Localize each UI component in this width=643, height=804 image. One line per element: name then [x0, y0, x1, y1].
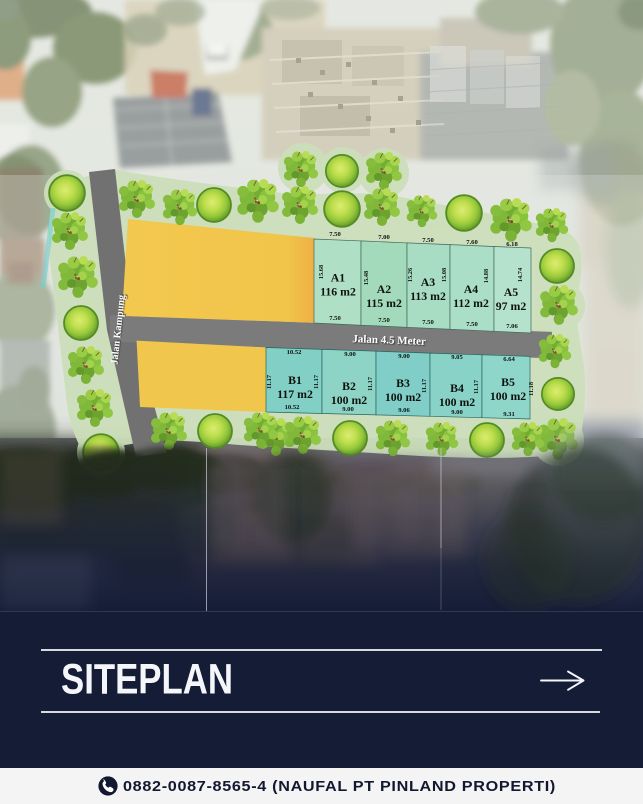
- svg-text:15.08: 15.08: [441, 268, 448, 282]
- svg-text:B5: B5: [501, 375, 515, 389]
- svg-text:113 m2: 113 m2: [410, 289, 446, 303]
- svg-text:11.17: 11.17: [266, 374, 273, 389]
- svg-text:15.48: 15.48: [363, 271, 370, 285]
- svg-text:100 m2: 100 m2: [439, 395, 475, 409]
- svg-text:B3: B3: [396, 376, 410, 390]
- svg-text:14.88: 14.88: [483, 269, 490, 283]
- svg-text:7.60: 7.60: [466, 239, 478, 246]
- svg-text:11.18: 11.18: [528, 382, 535, 396]
- svg-text:7.50: 7.50: [422, 319, 434, 326]
- svg-text:97 m2: 97 m2: [496, 299, 527, 313]
- svg-text:14.74: 14.74: [517, 267, 524, 282]
- svg-text:A2: A2: [377, 282, 392, 296]
- svg-text:SITEPLAN: SITEPLAN: [61, 657, 233, 704]
- svg-text:9.00: 9.00: [398, 353, 410, 360]
- svg-text:0882-0087-8565-4 (NAUFAL PT PI: 0882-0087-8565-4 (NAUFAL PT PINLAND PROP…: [123, 779, 556, 795]
- svg-text:B4: B4: [450, 381, 464, 395]
- svg-text:7.06: 7.06: [506, 323, 518, 330]
- svg-text:B1: B1: [288, 373, 302, 387]
- svg-text:117 m2: 117 m2: [277, 387, 313, 401]
- svg-text:11.17: 11.17: [421, 378, 428, 393]
- svg-text:15.26: 15.26: [407, 267, 414, 282]
- svg-text:A4: A4: [464, 282, 479, 296]
- svg-text:7.50: 7.50: [329, 231, 341, 238]
- svg-text:11.17: 11.17: [473, 379, 480, 394]
- svg-text:6.18: 6.18: [506, 241, 518, 248]
- svg-text:15.68: 15.68: [318, 265, 325, 279]
- svg-text:116 m2: 116 m2: [320, 285, 356, 299]
- svg-text:A3: A3: [421, 275, 436, 289]
- svg-text:A5: A5: [504, 285, 519, 299]
- svg-text:11.17: 11.17: [367, 376, 374, 391]
- svg-text:11.17: 11.17: [313, 374, 320, 389]
- svg-text:7.50: 7.50: [329, 315, 341, 322]
- svg-text:100 m2: 100 m2: [331, 393, 367, 407]
- svg-text:7.50: 7.50: [466, 321, 478, 328]
- svg-text:10.52: 10.52: [285, 404, 301, 411]
- svg-text:6.64: 6.64: [503, 356, 515, 363]
- svg-text:7.50: 7.50: [422, 237, 434, 244]
- svg-text:9.00: 9.00: [344, 351, 356, 358]
- svg-text:9.06: 9.06: [398, 407, 410, 414]
- svg-text:100 m2: 100 m2: [385, 390, 421, 404]
- svg-text:9.31: 9.31: [503, 411, 515, 418]
- svg-text:112 m2: 112 m2: [453, 296, 489, 310]
- svg-text:100 m2: 100 m2: [490, 389, 526, 403]
- svg-text:7.00: 7.00: [378, 234, 390, 241]
- svg-text:7.50: 7.50: [378, 317, 390, 324]
- svg-text:B2: B2: [342, 379, 356, 393]
- svg-text:10.52: 10.52: [287, 349, 303, 356]
- svg-text:115 m2: 115 m2: [366, 296, 402, 310]
- svg-text:9.05: 9.05: [451, 354, 463, 361]
- svg-text:9.00: 9.00: [451, 409, 463, 416]
- svg-text:9.00: 9.00: [342, 406, 354, 413]
- svg-text:A1: A1: [331, 271, 346, 285]
